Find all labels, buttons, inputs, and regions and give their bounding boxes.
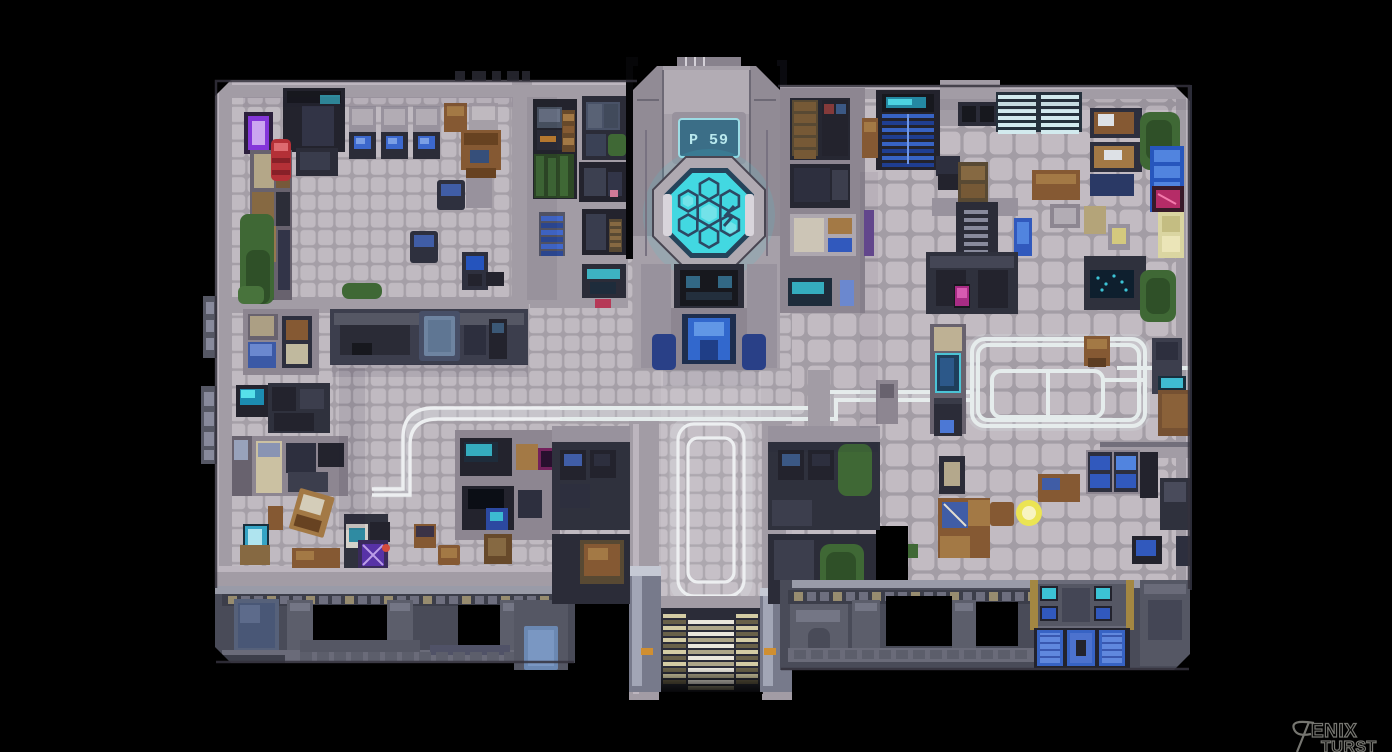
svg-text:TURST: TURST <box>1321 739 1377 752</box>
svg-text:P 59: P 59 <box>689 132 729 149</box>
